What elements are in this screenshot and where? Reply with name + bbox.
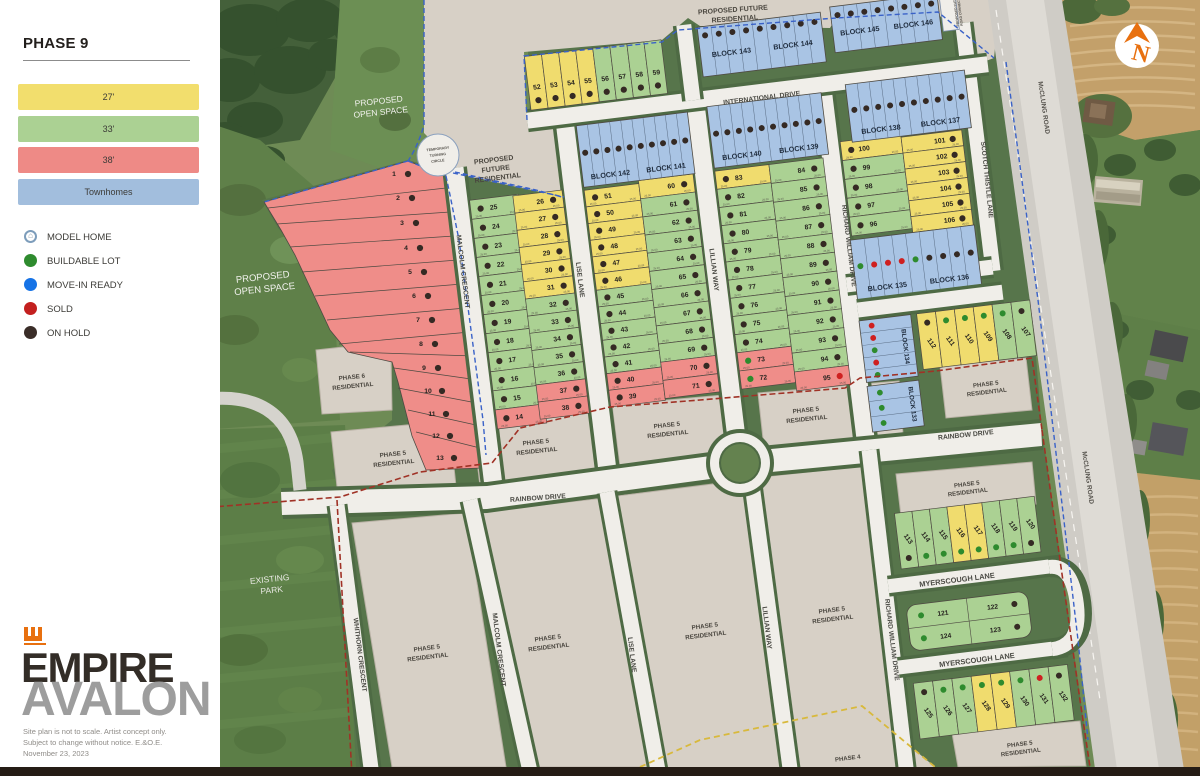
- svg-text:66: 66: [681, 292, 690, 300]
- svg-text:105: 105: [942, 201, 954, 209]
- svg-text:18: 18: [506, 337, 515, 345]
- svg-text:23: 23: [494, 242, 503, 250]
- svg-text:122: 122: [987, 603, 999, 611]
- svg-text:14: 14: [515, 414, 524, 422]
- svg-text:77: 77: [748, 283, 757, 291]
- svg-text:35: 35: [555, 353, 564, 361]
- svg-text:25.00: 25.00: [651, 247, 658, 252]
- svg-text:5: 5: [408, 269, 412, 276]
- svg-text:21: 21: [499, 280, 508, 288]
- svg-text:51: 51: [604, 193, 613, 201]
- svg-text:42: 42: [622, 343, 631, 351]
- svg-text:47: 47: [612, 259, 621, 267]
- svg-text:57: 57: [618, 73, 627, 81]
- svg-text:123: 123: [990, 626, 1002, 634]
- svg-text:72: 72: [759, 374, 768, 382]
- svg-text:46: 46: [614, 276, 623, 284]
- svg-text:44: 44: [618, 309, 627, 317]
- svg-text:52: 52: [533, 84, 542, 92]
- svg-text:25.00: 25.00: [596, 251, 603, 256]
- svg-text:91: 91: [813, 299, 822, 307]
- svg-text:26: 26: [536, 198, 545, 206]
- svg-text:61: 61: [669, 201, 678, 209]
- svg-text:101: 101: [934, 137, 946, 145]
- svg-text:11: 11: [428, 411, 435, 418]
- svg-text:67: 67: [683, 310, 692, 318]
- svg-text:68: 68: [685, 328, 694, 336]
- svg-text:79: 79: [744, 247, 753, 255]
- svg-text:99: 99: [862, 164, 871, 172]
- svg-text:76: 76: [750, 302, 759, 310]
- svg-text:32: 32: [549, 301, 558, 309]
- svg-text:71: 71: [692, 383, 701, 391]
- svg-text:36: 36: [557, 370, 566, 378]
- svg-text:98: 98: [865, 183, 874, 191]
- svg-text:25.00: 25.00: [778, 324, 785, 329]
- svg-text:10: 10: [424, 388, 432, 395]
- svg-text:92: 92: [816, 318, 825, 326]
- svg-text:17: 17: [508, 356, 517, 364]
- svg-text:7: 7: [416, 317, 420, 324]
- svg-text:15: 15: [513, 395, 522, 403]
- svg-text:34: 34: [553, 336, 562, 344]
- svg-text:41: 41: [624, 359, 633, 367]
- svg-text:54: 54: [567, 80, 576, 88]
- svg-text:39: 39: [629, 393, 638, 401]
- svg-text:94: 94: [820, 356, 829, 364]
- svg-text:2: 2: [396, 195, 400, 202]
- svg-text:97: 97: [867, 202, 876, 210]
- svg-text:40: 40: [626, 376, 635, 384]
- svg-text:55: 55: [584, 78, 593, 86]
- svg-text:25.00: 25.00: [569, 341, 576, 346]
- svg-text:69: 69: [687, 346, 696, 354]
- svg-text:70: 70: [690, 364, 699, 372]
- svg-text:85: 85: [800, 186, 809, 194]
- svg-text:25.00: 25.00: [738, 329, 745, 334]
- svg-text:38: 38: [561, 404, 570, 412]
- svg-text:49: 49: [608, 226, 617, 234]
- svg-text:37: 37: [559, 387, 568, 395]
- svg-text:1: 1: [392, 171, 396, 178]
- svg-text:25.00: 25.00: [766, 233, 773, 238]
- svg-text:74: 74: [755, 338, 764, 346]
- svg-text:25.00: 25.00: [702, 333, 709, 338]
- svg-text:20: 20: [501, 299, 510, 307]
- svg-text:104: 104: [940, 185, 952, 193]
- svg-text:4: 4: [404, 245, 408, 252]
- svg-text:82: 82: [737, 193, 746, 201]
- svg-text:50: 50: [606, 209, 615, 217]
- svg-text:25.00: 25.00: [535, 345, 542, 350]
- svg-text:8: 8: [419, 341, 423, 348]
- svg-text:106: 106: [944, 217, 956, 225]
- svg-text:25.00: 25.00: [662, 338, 669, 343]
- svg-text:86: 86: [802, 205, 811, 213]
- svg-text:6: 6: [412, 293, 416, 300]
- svg-text:62: 62: [672, 219, 681, 227]
- svg-text:56: 56: [601, 75, 610, 83]
- svg-text:64: 64: [676, 255, 685, 263]
- svg-text:84: 84: [797, 167, 806, 175]
- svg-text:25.00: 25.00: [559, 255, 566, 260]
- svg-text:25.00: 25.00: [525, 259, 532, 264]
- svg-text:43: 43: [620, 326, 629, 334]
- svg-text:103: 103: [938, 169, 950, 177]
- svg-text:80: 80: [741, 229, 750, 237]
- svg-text:88: 88: [807, 243, 816, 251]
- svg-text:13: 13: [436, 455, 444, 462]
- svg-text:59: 59: [652, 69, 661, 77]
- svg-text:25.00: 25.00: [727, 238, 734, 243]
- svg-text:25: 25: [489, 204, 498, 212]
- svg-text:83: 83: [735, 174, 744, 182]
- svg-text:25.00: 25.00: [499, 404, 506, 409]
- svg-text:28: 28: [540, 233, 549, 241]
- svg-text:27: 27: [538, 216, 547, 224]
- svg-text:25.00: 25.00: [606, 335, 613, 340]
- svg-text:29: 29: [542, 250, 551, 258]
- svg-text:22: 22: [496, 261, 505, 269]
- svg-text:89: 89: [809, 261, 818, 269]
- svg-text:90: 90: [811, 280, 820, 288]
- svg-text:65: 65: [678, 274, 687, 282]
- svg-text:24: 24: [492, 223, 501, 231]
- svg-text:31: 31: [547, 284, 556, 292]
- svg-text:25.00: 25.00: [475, 214, 482, 219]
- svg-text:100: 100: [858, 145, 870, 153]
- svg-text:93: 93: [818, 337, 827, 345]
- svg-text:73: 73: [757, 356, 766, 364]
- svg-text:53: 53: [550, 82, 559, 90]
- svg-text:81: 81: [739, 211, 748, 219]
- svg-text:48: 48: [610, 243, 619, 251]
- svg-text:63: 63: [674, 237, 683, 245]
- svg-text:60: 60: [667, 183, 676, 191]
- svg-text:25.00: 25.00: [690, 243, 697, 248]
- svg-text:9: 9: [422, 365, 426, 372]
- svg-text:78: 78: [746, 265, 755, 273]
- svg-text:102: 102: [936, 153, 948, 161]
- svg-text:95: 95: [823, 375, 832, 383]
- svg-text:121: 121: [937, 610, 949, 618]
- svg-text:30: 30: [545, 267, 554, 275]
- svg-text:45: 45: [616, 293, 625, 301]
- svg-text:124: 124: [940, 632, 952, 640]
- svg-text:25.00: 25.00: [635, 246, 642, 251]
- svg-text:12: 12: [432, 433, 440, 440]
- svg-text:33: 33: [551, 319, 560, 327]
- svg-text:58: 58: [635, 71, 644, 79]
- svg-text:19: 19: [504, 318, 513, 326]
- svg-text:25.00: 25.00: [646, 330, 653, 335]
- svg-text:16: 16: [511, 375, 520, 383]
- svg-text:96: 96: [869, 221, 878, 229]
- svg-text:87: 87: [804, 224, 813, 232]
- svg-text:25.00: 25.00: [487, 309, 494, 314]
- svg-text:75: 75: [753, 320, 762, 328]
- svg-text:3: 3: [400, 220, 404, 227]
